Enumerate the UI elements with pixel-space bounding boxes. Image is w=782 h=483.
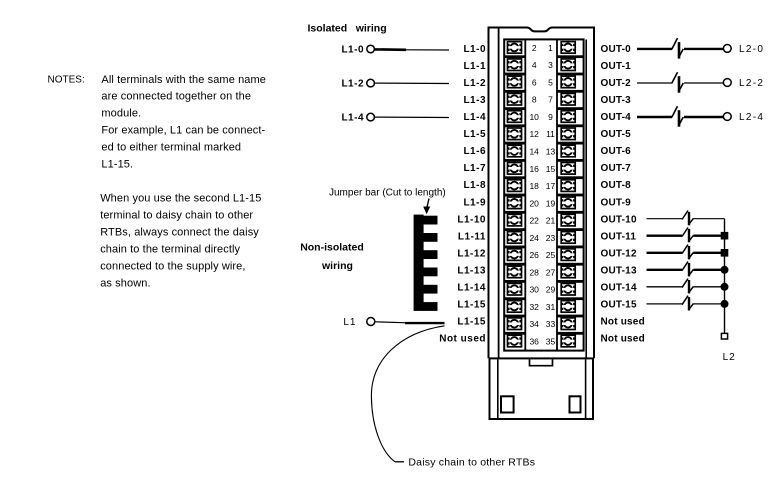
svg-text:29: 29 xyxy=(546,285,556,295)
svg-text:4: 4 xyxy=(532,60,537,70)
svg-text:L2-4: L2-4 xyxy=(739,112,764,123)
svg-text:For example, L1 can be connect: For example, L1 can be connect- xyxy=(101,125,265,137)
svg-text:connected to the supply wire,: connected to the supply wire, xyxy=(100,261,245,273)
svg-text:OUT-15: OUT-15 xyxy=(601,300,637,311)
svg-text:OUT-12: OUT-12 xyxy=(601,248,637,259)
svg-text:module.: module. xyxy=(101,108,141,120)
svg-text:OUT-5: OUT-5 xyxy=(601,129,632,140)
svg-text:OUT-4: OUT-4 xyxy=(601,112,632,123)
svg-text:ed to either terminal marked: ed to either terminal marked xyxy=(101,141,241,153)
svg-text:1: 1 xyxy=(548,43,553,53)
svg-text:7: 7 xyxy=(548,95,553,105)
svg-text:OUT-11: OUT-11 xyxy=(601,231,637,242)
svg-text:Non-isolated: Non-isolated xyxy=(300,241,364,253)
svg-text:30: 30 xyxy=(529,285,539,295)
svg-text:23: 23 xyxy=(546,233,556,243)
svg-text:RTBs, always connect the daisy: RTBs, always connect the daisy xyxy=(100,227,259,239)
svg-text:All terminals with the same na: All terminals with the same name xyxy=(101,74,266,86)
svg-text:are connected together on the: are connected together on the xyxy=(101,91,251,103)
svg-text:L1-1: L1-1 xyxy=(463,61,486,72)
svg-text:20: 20 xyxy=(529,198,539,208)
svg-text:L2-0: L2-0 xyxy=(739,44,764,55)
svg-text:35: 35 xyxy=(546,337,556,347)
svg-text:25: 25 xyxy=(546,250,556,260)
svg-text:L2-2: L2-2 xyxy=(739,78,764,89)
svg-text:Daisy chain to other RTBs: Daisy chain to other RTBs xyxy=(408,457,535,469)
svg-text:L1-15: L1-15 xyxy=(457,317,486,328)
svg-text:wiring: wiring xyxy=(321,260,353,272)
svg-text:OUT-2: OUT-2 xyxy=(601,78,632,89)
svg-text:L1-13: L1-13 xyxy=(457,265,486,276)
svg-text:NOTES:: NOTES: xyxy=(48,75,85,86)
svg-text:5: 5 xyxy=(548,77,553,87)
svg-text:18: 18 xyxy=(529,181,539,191)
svg-text:19: 19 xyxy=(546,198,556,208)
svg-text:6: 6 xyxy=(532,77,537,87)
svg-text:as shown.: as shown. xyxy=(100,278,150,290)
svg-text:33: 33 xyxy=(546,319,556,329)
svg-text:17: 17 xyxy=(546,181,556,191)
svg-text:32: 32 xyxy=(529,302,539,312)
svg-text:Jumper bar (Cut to length): Jumper bar (Cut to length) xyxy=(329,188,446,199)
svg-text:L1-6: L1-6 xyxy=(463,146,486,157)
svg-text:36: 36 xyxy=(529,337,539,347)
svg-text:OUT-8: OUT-8 xyxy=(601,180,632,191)
svg-text:L1-2: L1-2 xyxy=(341,79,364,90)
svg-text:L1-0: L1-0 xyxy=(341,45,364,56)
svg-text:11: 11 xyxy=(546,129,555,139)
svg-text:L1-15: L1-15 xyxy=(457,300,486,311)
svg-text:OUT-14: OUT-14 xyxy=(601,282,637,293)
svg-text:OUT-0: OUT-0 xyxy=(601,44,632,55)
svg-text:L1-4: L1-4 xyxy=(463,112,486,123)
svg-text:31: 31 xyxy=(546,302,556,312)
svg-text:Isolated: Isolated xyxy=(308,23,348,35)
svg-text:L1-11: L1-11 xyxy=(458,231,486,242)
svg-text:L1-9: L1-9 xyxy=(463,197,486,208)
svg-text:L1-12: L1-12 xyxy=(457,248,486,259)
svg-text:L1-10: L1-10 xyxy=(457,214,486,225)
svg-text:8: 8 xyxy=(532,95,537,105)
svg-text:OUT-10: OUT-10 xyxy=(601,214,637,225)
svg-text:27: 27 xyxy=(546,267,556,277)
svg-text:Not used: Not used xyxy=(601,317,645,328)
svg-text:21: 21 xyxy=(546,216,556,226)
svg-text:28: 28 xyxy=(529,267,539,277)
svg-text:2: 2 xyxy=(532,43,537,53)
svg-text:L1-0: L1-0 xyxy=(463,44,486,55)
svg-text:Not used: Not used xyxy=(601,334,645,345)
svg-text:L2: L2 xyxy=(723,352,736,363)
svg-text:24: 24 xyxy=(529,233,539,243)
svg-text:OUT-9: OUT-9 xyxy=(601,197,632,208)
svg-text:12: 12 xyxy=(529,129,539,139)
svg-text:terminal to daisy chain to oth: terminal to daisy chain to other xyxy=(100,210,253,222)
svg-text:OUT-6: OUT-6 xyxy=(601,146,632,157)
svg-text:L1-8: L1-8 xyxy=(463,180,486,191)
svg-text:L1-5: L1-5 xyxy=(463,129,486,140)
svg-text:OUT-13: OUT-13 xyxy=(601,265,637,276)
svg-text:9: 9 xyxy=(548,112,553,122)
svg-text:wiring: wiring xyxy=(355,23,387,35)
svg-text:OUT-1: OUT-1 xyxy=(601,61,632,72)
svg-text:26: 26 xyxy=(529,250,539,260)
svg-text:L1-2: L1-2 xyxy=(463,78,486,89)
svg-text:When you use the second L1-15: When you use the second L1-15 xyxy=(100,193,261,205)
svg-text:10: 10 xyxy=(529,112,539,122)
svg-text:34: 34 xyxy=(529,319,539,329)
svg-text:L1: L1 xyxy=(343,317,356,328)
svg-text:L1-14: L1-14 xyxy=(457,282,486,293)
svg-text:Not used: Not used xyxy=(439,334,486,345)
svg-text:3: 3 xyxy=(548,60,553,70)
svg-text:L1-15.: L1-15. xyxy=(101,158,133,170)
svg-text:L1-3: L1-3 xyxy=(463,95,486,106)
svg-text:15: 15 xyxy=(546,164,556,174)
svg-text:chain to the terminal directly: chain to the terminal directly xyxy=(100,244,240,256)
svg-text:14: 14 xyxy=(529,147,539,157)
svg-text:L1-7: L1-7 xyxy=(463,163,486,174)
svg-text:22: 22 xyxy=(529,216,539,226)
svg-text:OUT-3: OUT-3 xyxy=(601,95,632,106)
svg-text:L1-4: L1-4 xyxy=(341,113,364,124)
svg-text:16: 16 xyxy=(529,164,539,174)
svg-text:OUT-7: OUT-7 xyxy=(601,163,632,174)
svg-text:13: 13 xyxy=(546,147,556,157)
